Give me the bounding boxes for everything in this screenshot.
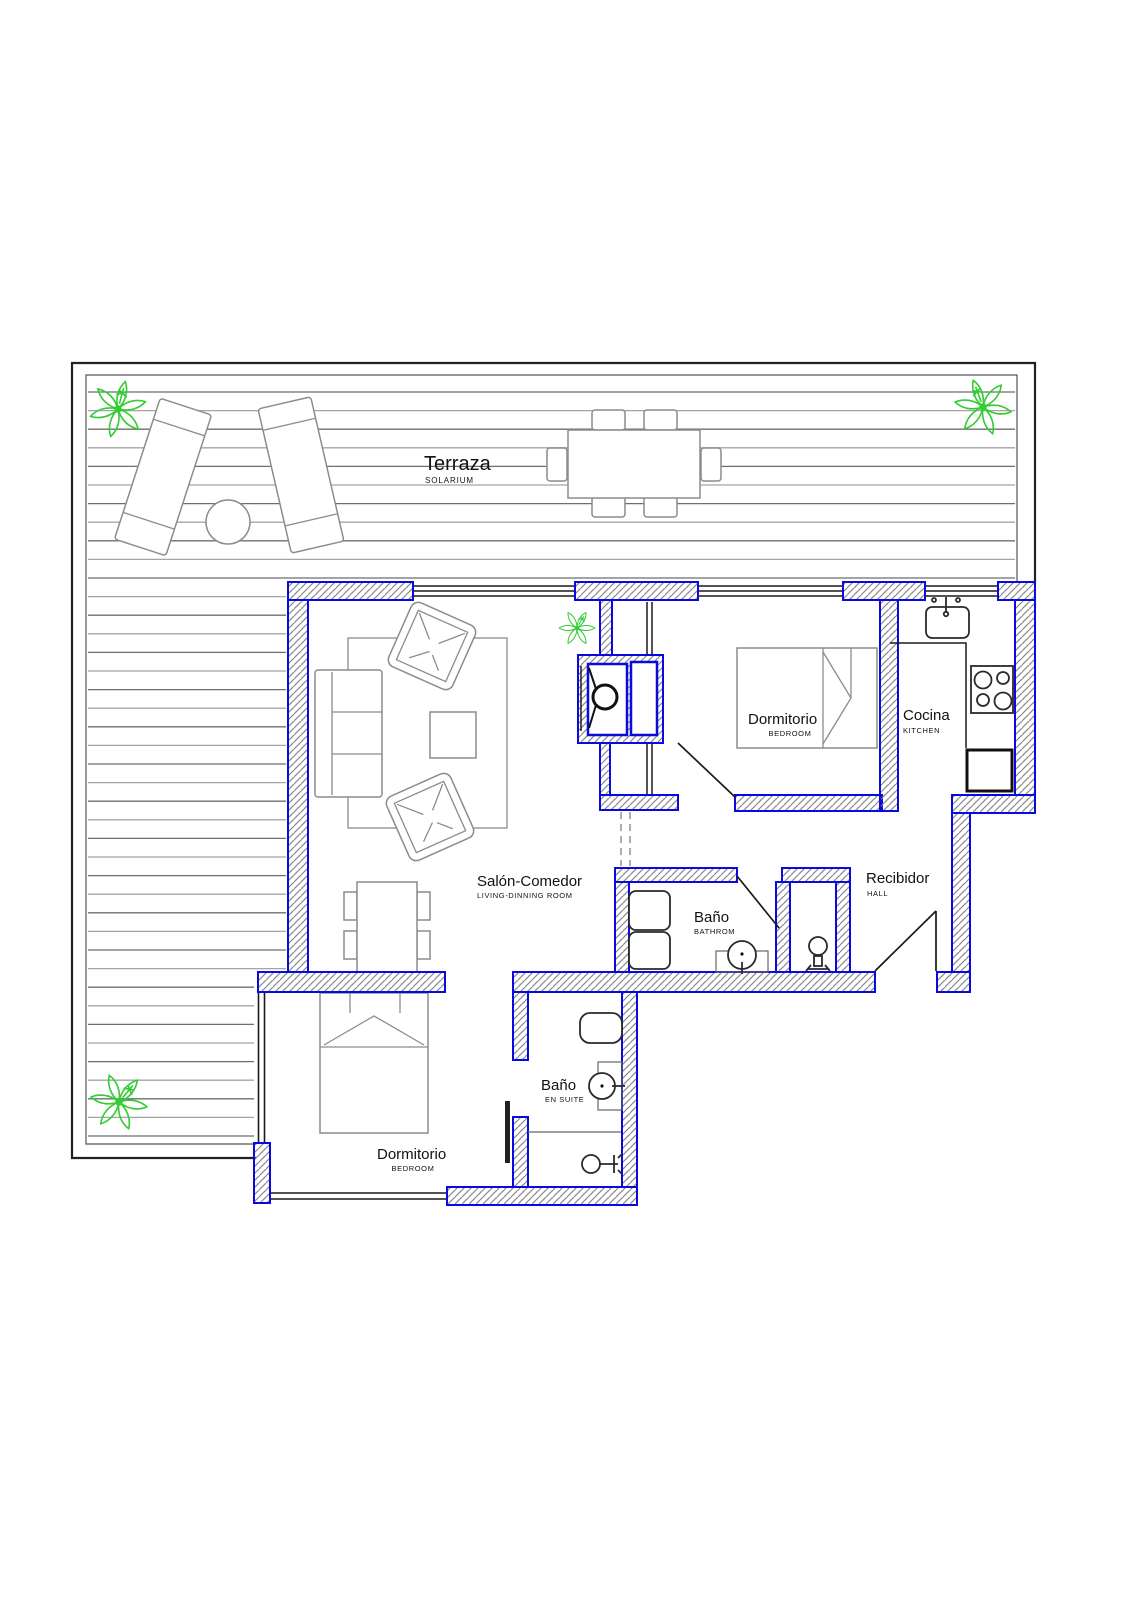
- plant-icon: [948, 371, 1017, 442]
- room-type: BATHROM: [694, 927, 735, 936]
- window: [925, 586, 998, 596]
- room-type: KITCHEN: [903, 726, 940, 735]
- room-label-bano: Baño BATHROM: [694, 909, 735, 936]
- kitchen-sink: [926, 597, 969, 638]
- room-type: HALL: [867, 889, 888, 898]
- dining-chair: [417, 931, 430, 959]
- shower-tray: [629, 932, 670, 969]
- window: [413, 586, 575, 596]
- room-type: SOLARIUM: [425, 476, 474, 485]
- outdoor-chair: [592, 497, 625, 517]
- outdoor-chair: [644, 497, 677, 517]
- outdoor-dining-set: [547, 410, 721, 517]
- room-type: BEDROOM: [769, 729, 812, 738]
- sofa: [315, 670, 382, 797]
- room-name: Terraza: [424, 453, 492, 475]
- window: [270, 1193, 447, 1199]
- dining-chair: [417, 892, 430, 920]
- sun-lounger: [114, 398, 211, 555]
- room-label-cocina: Cocina KITCHEN: [903, 707, 950, 735]
- plant-icon: [85, 375, 151, 444]
- room-label-dormitorio-2: Dormitorio BEDROOM: [377, 1146, 446, 1173]
- window: [698, 586, 843, 596]
- duct-dashed: [621, 812, 630, 866]
- room-name: Recibidor: [866, 870, 929, 887]
- coffee-table: [430, 712, 476, 758]
- room-label-salon-comedor: Salón-Comedor LIVING-DINNING ROOM: [477, 873, 582, 900]
- outdoor-chair: [592, 410, 625, 430]
- room-name: Baño: [541, 1077, 576, 1094]
- outdoor-dining-table: [568, 430, 700, 498]
- fridge-icon: [967, 750, 1012, 791]
- room-label-bano-ensuite: Baño EN SUITE: [541, 1077, 584, 1104]
- shower-tray: [629, 891, 670, 930]
- room-name: Salón-Comedor: [477, 873, 582, 890]
- round-side-table: [206, 500, 250, 544]
- shower-head-icon: [582, 1154, 622, 1174]
- stove-icon: [971, 666, 1013, 713]
- dining-table: [357, 882, 417, 972]
- entry-door-swing: [875, 911, 936, 971]
- door-swing: [737, 876, 779, 928]
- outdoor-chair: [644, 410, 677, 430]
- door-swing: [678, 743, 735, 797]
- dining-chair: [344, 931, 357, 959]
- room-name: Baño: [694, 909, 729, 926]
- toilet-icon: [806, 937, 830, 971]
- room-name: Dormitorio: [377, 1146, 446, 1163]
- plant-icon: [80, 1063, 157, 1141]
- armchair: [384, 771, 476, 863]
- room-label-terraza: Terraza SOLARIUM: [424, 453, 492, 485]
- armchair: [386, 600, 478, 692]
- bed: [320, 993, 428, 1133]
- flue-unit: [578, 655, 663, 743]
- terrace-border-inner: [86, 375, 1017, 1144]
- outdoor-chair: [701, 448, 721, 481]
- floor-plan-drawing: Terraza SOLARIUM Salón-Comedor LIVING-DI…: [0, 0, 1131, 1600]
- room-label-recibidor: Recibidor HALL: [866, 870, 929, 898]
- room-type: LIVING-DINNING ROOM: [477, 891, 573, 900]
- room-name: Cocina: [903, 707, 950, 724]
- plant-icon: [554, 604, 601, 652]
- sun-lounger: [258, 397, 344, 553]
- room-type: BEDROOM: [392, 1164, 435, 1173]
- window: [259, 992, 265, 1143]
- room-name: Dormitorio: [748, 711, 817, 728]
- outdoor-chair: [547, 448, 567, 481]
- dining-chair: [344, 892, 357, 920]
- toilet-icon: [580, 1013, 622, 1043]
- pocket-door-leaf: [505, 1101, 510, 1163]
- floor-plan-page: Terraza SOLARIUM Salón-Comedor LIVING-DI…: [0, 0, 1131, 1600]
- dining-set: [344, 882, 430, 972]
- room-type: EN SUITE: [545, 1095, 584, 1104]
